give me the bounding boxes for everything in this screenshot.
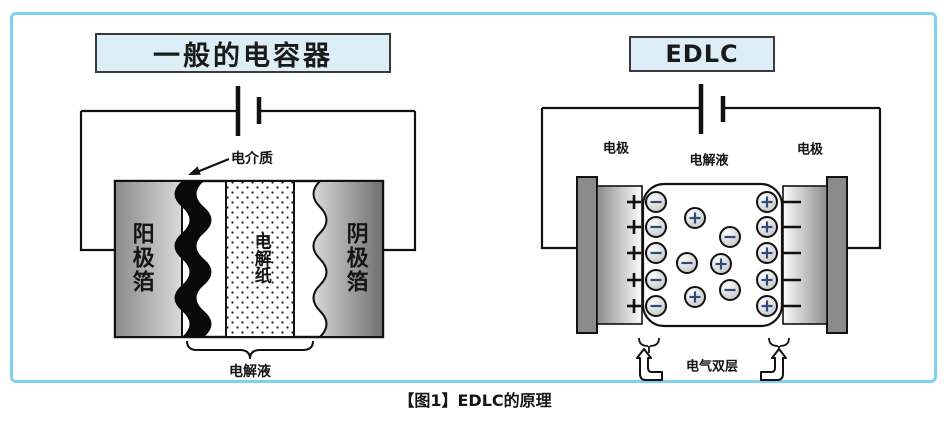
electrolytic-paper-label: 电解纸 xyxy=(250,233,270,284)
electrolyte-brace xyxy=(187,341,313,359)
edlc-diagram xyxy=(542,84,880,380)
figure-canvas: 一般的电容器 EDLC 电介质 阳极箔 电解纸 阴极箔 电解液 电极 电解液 电… xyxy=(0,0,949,426)
anion-icon xyxy=(720,280,740,300)
curved-up-arrow-right-icon xyxy=(761,349,786,380)
battery-symbol-icon xyxy=(701,84,723,134)
anion-icon xyxy=(677,253,697,273)
electrode-right-label: 电极 xyxy=(797,144,823,159)
left-panel-title: 一般的电容器 xyxy=(95,33,391,73)
electrode-block-right xyxy=(783,186,827,324)
electrolyte-label-edlc: 电解液 xyxy=(689,155,728,170)
cation-icon xyxy=(685,208,705,228)
cation-icon xyxy=(757,192,777,212)
collector-bar-right xyxy=(827,177,847,333)
anion-icon xyxy=(646,296,666,316)
anion-icon xyxy=(646,192,666,212)
cation-icon xyxy=(685,287,705,307)
anion-icon xyxy=(720,227,740,247)
anode-foil-label: 阳极箔 xyxy=(128,222,153,294)
anion-icon xyxy=(646,270,666,290)
collector-bar-left xyxy=(577,177,597,333)
dielectric-arrow-icon xyxy=(188,159,229,175)
electric-double-layer-label: 电气双层 xyxy=(686,361,738,376)
cathode-foil-label: 阴极箔 xyxy=(342,222,367,294)
cation-icon xyxy=(757,217,777,237)
electrolyte-label-left: 电解液 xyxy=(229,364,271,380)
right-panel-title: EDLC xyxy=(629,36,775,72)
anion-icon xyxy=(646,217,666,237)
cation-icon xyxy=(757,243,777,263)
anion-icon xyxy=(646,243,666,263)
dielectric-label: 电介质 xyxy=(231,151,273,167)
electrode-left-label: 电极 xyxy=(603,143,629,158)
curved-up-arrow-left-icon xyxy=(637,349,662,380)
cation-icon xyxy=(757,270,777,290)
cation-icon xyxy=(711,254,731,274)
figure-caption: 【图1】EDLC的原理 xyxy=(398,392,551,410)
cation-icon xyxy=(757,296,777,316)
battery-symbol-icon xyxy=(238,86,259,136)
